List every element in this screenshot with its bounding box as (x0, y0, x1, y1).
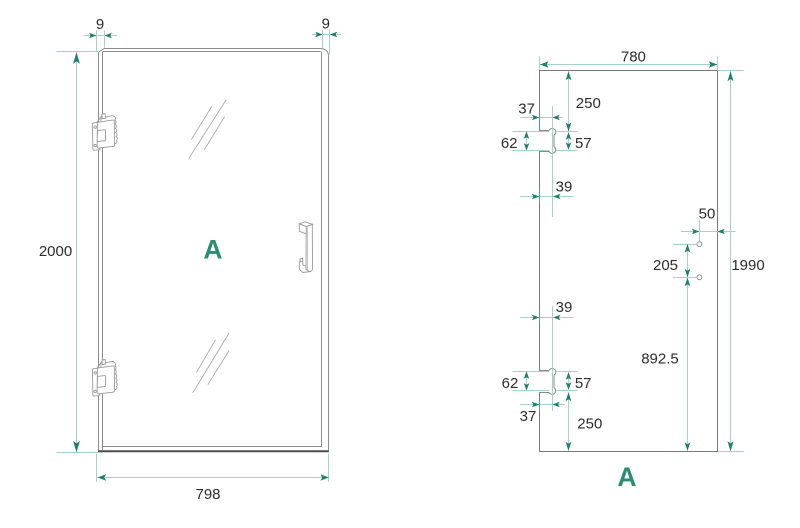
svg-text:798: 798 (195, 486, 220, 503)
svg-text:892.5: 892.5 (641, 350, 679, 367)
svg-text:62: 62 (501, 135, 518, 152)
svg-text:250: 250 (576, 95, 601, 112)
svg-text:37: 37 (520, 408, 537, 425)
svg-text:39: 39 (556, 299, 573, 316)
svg-text:62: 62 (502, 375, 519, 392)
svg-text:1990: 1990 (731, 257, 764, 274)
svg-text:250: 250 (577, 416, 602, 433)
svg-text:9: 9 (322, 15, 330, 32)
svg-text:50: 50 (699, 206, 716, 223)
svg-text:57: 57 (575, 135, 592, 152)
svg-text:39: 39 (556, 179, 573, 196)
svg-text:2000: 2000 (39, 243, 72, 260)
svg-text:A: A (203, 234, 222, 264)
svg-text:780: 780 (621, 48, 646, 65)
svg-text:57: 57 (575, 375, 592, 392)
svg-text:205: 205 (653, 257, 678, 274)
svg-text:37: 37 (518, 101, 535, 118)
svg-text:9: 9 (96, 16, 104, 33)
svg-text:A: A (617, 462, 636, 492)
